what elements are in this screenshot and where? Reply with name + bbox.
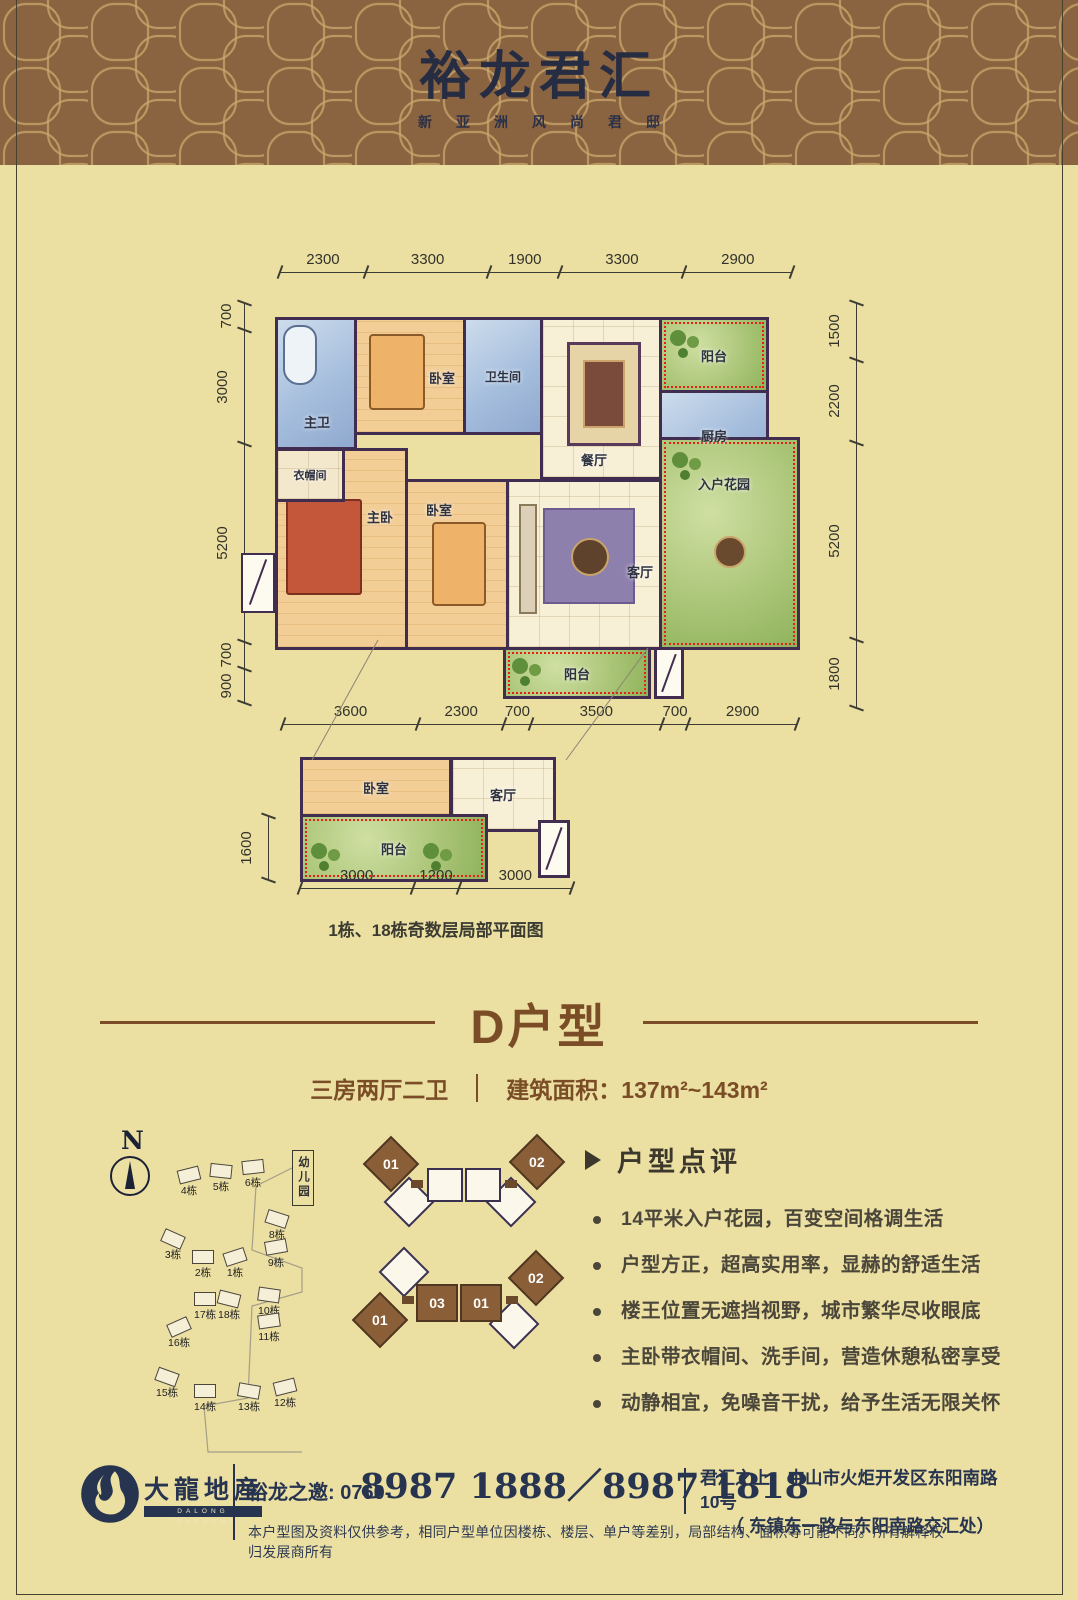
room-label: 客厅 [627, 562, 653, 581]
building-icon [217, 1290, 242, 1309]
building-icon [177, 1166, 202, 1185]
room-label: 餐厅 [581, 450, 607, 469]
tower-outline [427, 1168, 463, 1202]
room-label: 衣帽间 [294, 467, 327, 483]
title-rule-left [100, 1021, 435, 1024]
site-building: 2栋 [192, 1250, 214, 1280]
dim-value: 5200 [826, 525, 843, 558]
project-title: 裕龙君汇 [0, 34, 1078, 109]
bed [432, 522, 486, 606]
dim-value: 2200 [826, 385, 843, 418]
site-building: 11栋 [258, 1314, 280, 1344]
flyer-page: 裕龙君汇 新亚洲风尚君邸 2300 3300 1900 3300 2900 70… [0, 0, 1078, 1600]
dim-right: 1500 2200 5200 1800 [838, 303, 857, 708]
review-item: 户型方正，超高实用率，显赫的舒适生活 [585, 1249, 1035, 1282]
core-block [506, 1296, 518, 1304]
site-building: 15栋 [156, 1370, 178, 1400]
dim-bottom: 3600 2300 700 3500 700 2900 [283, 702, 797, 725]
garden-table [714, 536, 746, 568]
room-master-bath: 主卫 [275, 317, 357, 450]
dim-value: 3500 [531, 703, 662, 720]
round-table [571, 538, 609, 576]
dim-value: 2900 [684, 251, 792, 268]
building-icon [257, 1287, 281, 1304]
unit-title-row: D户型 [0, 988, 1078, 1057]
unit-03-marker: 03 [416, 1284, 458, 1322]
dim-value: 700 [662, 703, 688, 720]
bed [369, 334, 425, 410]
site-map: N 幼儿园 4栋 5栋 6栋 3栋 2栋 1栋 8栋 9栋 17栋 18栋 16… [100, 1122, 355, 1427]
review-item: 主卧带衣帽间、洗手间，营造休憩私密享受 [585, 1341, 1035, 1374]
dim-sub-bottom: 3000 1200 3000 [300, 866, 572, 889]
compass-icon [110, 1156, 150, 1196]
room-dining: 餐厅 [540, 317, 662, 480]
building-icon [257, 1313, 281, 1330]
dim-sub-left: 1600 [250, 816, 269, 880]
review-header: 户型点评 [585, 1140, 1035, 1179]
bullet-dot-icon [593, 1308, 601, 1316]
unit-diagram-bottom: 03 01 01 02 [358, 1252, 563, 1357]
room-balcony-top: 阳台 [659, 317, 769, 393]
project-subtitle: 新亚洲风尚君邸 [0, 112, 1078, 132]
subtitle-divider [476, 1074, 478, 1102]
core-block [411, 1180, 423, 1188]
room-bedroom-mid: 卧室 [405, 479, 509, 650]
header-band: 裕龙君汇 新亚洲风尚君邸 [0, 0, 1078, 165]
dim-value: 700 [218, 643, 235, 668]
sofa [519, 504, 537, 614]
unit-section: D户型 三房两厅二卫 建筑面积：137m²~143m² [0, 988, 1078, 1105]
dim-value: 2300 [280, 251, 366, 268]
review-list: 14平米入户花园，百变空间格调生活 户型方正，超高实用率，显赫的舒适生活 楼王位… [585, 1203, 1035, 1420]
address-line-1: 君汇之上：中山市火炬开发区东阳南路10号 [700, 1466, 1000, 1514]
dim-value: 2300 [418, 703, 504, 720]
room-entry-garden: 入户花园 [659, 437, 800, 650]
room-bedroom-top: 卧室 [354, 317, 466, 435]
site-building: 13栋 [238, 1384, 260, 1414]
room-label: 卧室 [429, 368, 455, 387]
site-building: 6栋 [242, 1160, 264, 1190]
bullet-dot-icon [593, 1354, 601, 1362]
room-label: 卧室 [363, 778, 389, 797]
footer-divider [233, 1464, 235, 1540]
room-label: 阳台 [564, 664, 590, 683]
site-building: 4栋 [178, 1168, 200, 1198]
site-building: 12栋 [274, 1380, 296, 1410]
site-building: 3栋 [162, 1232, 184, 1262]
room-label: 主卧 [367, 507, 393, 526]
dim-top: 2300 3300 1900 3300 2900 [280, 250, 792, 273]
plant-icon [423, 843, 439, 859]
unit-area: 建筑面积：137m²~143m² [506, 1071, 767, 1105]
dim-value: 3000 [300, 867, 413, 884]
dim-value: 3300 [560, 251, 683, 268]
room-label: 阳台 [701, 346, 727, 365]
unit-layout: 三房两厅二卫 [310, 1071, 448, 1105]
unit-01-marker: 01 [460, 1284, 502, 1322]
kindergarten-label: 幼儿园 [292, 1150, 314, 1206]
site-building: 5栋 [210, 1164, 232, 1194]
dim-value: 900 [218, 673, 235, 698]
room-cloak: 衣帽间 [275, 448, 345, 502]
triangle-bullet-icon [585, 1150, 601, 1170]
plant-icon [512, 658, 528, 674]
dim-value: 1500 [826, 315, 843, 348]
dim-value: 1200 [413, 867, 458, 884]
review-item: 14平米入户花园，百变空间格调生活 [585, 1203, 1035, 1236]
dim-value: 3600 [283, 703, 418, 720]
core-block [505, 1180, 517, 1188]
dim-value: 5200 [214, 526, 231, 559]
dim-value: 3000 [214, 370, 231, 403]
floor-plan: 主卫 卧室 卫生间 餐厅 阳台 厨房 主卧 衣帽间 [275, 303, 800, 650]
building-icon [222, 1247, 247, 1267]
dining-table [583, 360, 625, 428]
bullet-dot-icon [593, 1262, 601, 1270]
dim-value: 2900 [688, 703, 797, 720]
title-rule-right [643, 1021, 978, 1024]
building-icon [209, 1163, 232, 1179]
dim-value: 1900 [489, 251, 560, 268]
building-icon [241, 1159, 264, 1175]
dim-value: 1600 [238, 831, 255, 864]
building-icon [273, 1378, 298, 1397]
room-balcony-bottom: 阳台 [503, 647, 651, 699]
site-building: 1栋 [224, 1250, 246, 1280]
room-bedroom: 卧室 [300, 757, 452, 817]
room-living: 客厅 [506, 479, 662, 650]
room-label: 主卫 [304, 412, 330, 431]
site-building: 18栋 [218, 1292, 240, 1322]
room-label: 入户花园 [698, 474, 750, 493]
dim-value: 3000 [459, 867, 572, 884]
review-title: 户型点评 [617, 1140, 741, 1179]
review-item: 动静相宜，免噪音干扰，给予生活无限关怀 [585, 1387, 1035, 1420]
site-building: 9栋 [265, 1240, 287, 1270]
dim-value: 700 [218, 304, 235, 329]
site-building: 14栋 [194, 1384, 216, 1414]
bathtub [283, 325, 317, 385]
unit-01-marker: 01 [352, 1292, 409, 1349]
room-label: 卧室 [426, 500, 452, 519]
partial-plan: 卧室 客厅 阳台 [300, 757, 572, 882]
bullet-dot-icon [593, 1400, 601, 1408]
site-building: 17栋 [194, 1292, 216, 1322]
dim-value: 700 [504, 703, 530, 720]
dim-value: 3300 [366, 251, 489, 268]
review-item: 楼王位置无遮挡视野，城市繁华尽收眼底 [585, 1295, 1035, 1328]
room-label: 卫生间 [485, 368, 521, 385]
unit-diagram-top: 01 02 [365, 1140, 565, 1240]
building-icon [237, 1382, 261, 1400]
building-icon [264, 1238, 288, 1256]
site-building: 16栋 [168, 1320, 190, 1350]
core-block [402, 1296, 414, 1304]
bullet-dot-icon [593, 1216, 601, 1224]
plant-icon [670, 330, 686, 346]
plant-icon [311, 843, 327, 859]
bay-window [241, 553, 275, 613]
room-bath-2: 卫生间 [463, 317, 543, 435]
review-section: 户型点评 14平米入户花园，百变空间格调生活 户型方正，超高实用率，显赫的舒适生… [585, 1140, 1035, 1433]
footer-divider [684, 1468, 686, 1514]
master-bed [286, 499, 362, 595]
tower-outline [465, 1168, 501, 1202]
room-label: 客厅 [490, 785, 516, 804]
elevator-shaft [654, 647, 684, 699]
disclaimer: 本户型图及资料仅供参考，相同户型单位因楼栋、楼层、单户等差别，局部结构、面积等可… [248, 1522, 948, 1562]
partial-plan-caption: 1栋、18栋奇数层局部平面图 [290, 916, 582, 941]
room-label: 阳台 [381, 839, 407, 858]
unit-subtitle: 三房两厅二卫 建筑面积：137m²~143m² [0, 1071, 1078, 1105]
building-icon [192, 1250, 214, 1264]
north-label: N [121, 1126, 144, 1155]
plant-icon [672, 452, 688, 468]
room-label: 厨房 [701, 426, 727, 445]
compass-needle [125, 1161, 135, 1189]
developer-name-en: DALONG TENEMENT [144, 1506, 262, 1517]
unit-title: D户型 [471, 988, 608, 1057]
building-icon [194, 1292, 216, 1306]
dim-left: 700 3000 5200 700 900 [226, 303, 245, 703]
dalong-logo-icon [80, 1464, 140, 1524]
developer-name: 大龍地産 [144, 1470, 264, 1506]
dim-value: 1800 [826, 657, 843, 690]
building-icon [194, 1384, 216, 1398]
